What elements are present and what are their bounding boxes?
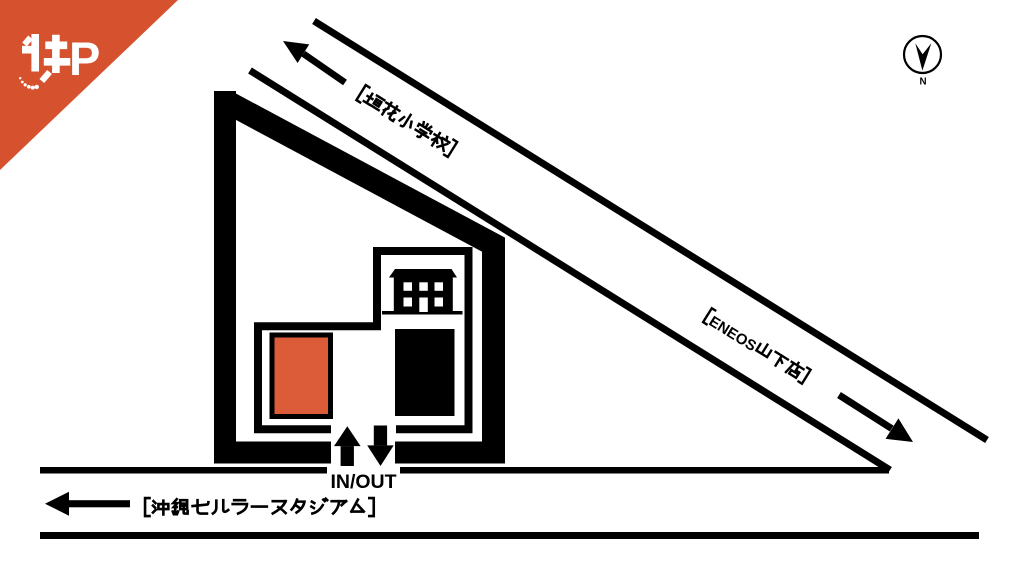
- svg-text:N: N: [919, 77, 926, 88]
- svg-text:P: P: [69, 32, 100, 85]
- svg-text:IN/OUT: IN/OUT: [330, 471, 396, 493]
